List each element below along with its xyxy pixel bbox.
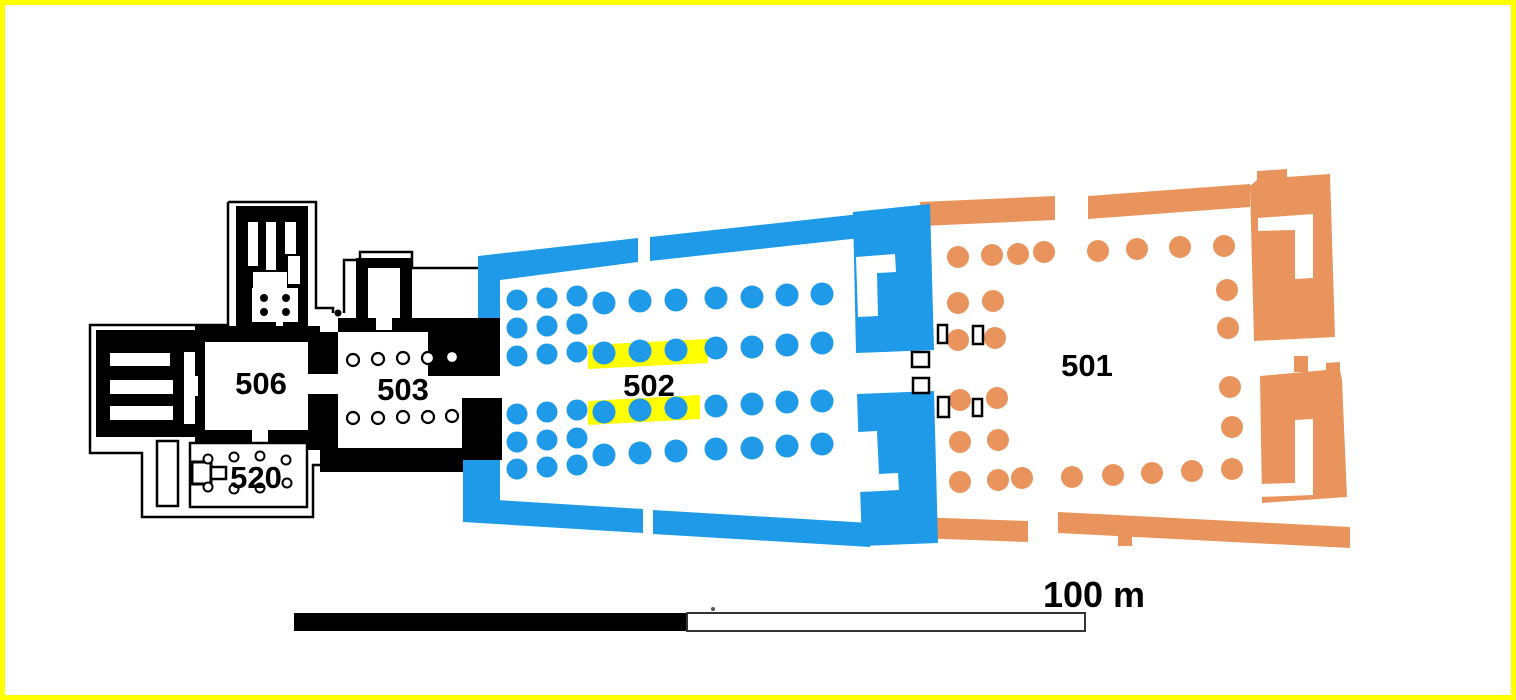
column xyxy=(629,340,652,363)
column xyxy=(665,339,688,362)
scale-bar-speck xyxy=(711,607,715,611)
room506-north-wall xyxy=(195,326,320,342)
column xyxy=(347,354,359,366)
column xyxy=(1126,238,1148,260)
column xyxy=(987,469,1009,491)
column xyxy=(1221,416,1243,438)
chapel-slot-3 xyxy=(285,222,296,254)
column xyxy=(397,411,409,423)
column xyxy=(1033,241,1055,263)
column xyxy=(537,402,558,423)
column xyxy=(507,346,528,367)
column xyxy=(567,455,588,476)
column xyxy=(507,318,528,339)
column xyxy=(984,327,1006,349)
column xyxy=(629,442,652,465)
court-base-1 xyxy=(938,325,947,343)
label-area-506: 506 xyxy=(235,366,287,401)
column xyxy=(705,438,728,461)
entrance-gate-tab xyxy=(1294,356,1308,372)
column xyxy=(986,387,1008,409)
column xyxy=(987,429,1009,451)
column xyxy=(567,286,588,307)
column xyxy=(1216,279,1238,301)
column xyxy=(537,316,558,337)
column xyxy=(629,290,652,313)
column xyxy=(741,286,764,309)
column xyxy=(1141,462,1163,484)
column xyxy=(811,332,834,355)
column xyxy=(260,308,268,316)
column xyxy=(372,353,384,365)
column xyxy=(665,289,688,312)
chapel-slot-4 xyxy=(288,256,300,284)
column xyxy=(1217,317,1239,339)
column xyxy=(593,401,616,424)
column xyxy=(665,440,688,463)
column xyxy=(811,283,834,306)
west-chamber-2 xyxy=(110,380,173,394)
column xyxy=(705,395,728,418)
column xyxy=(949,431,971,453)
court520-altar-step xyxy=(211,467,226,479)
column xyxy=(507,290,528,311)
column xyxy=(537,430,558,451)
column xyxy=(811,433,834,456)
room503-chapel-interior xyxy=(368,268,400,318)
column xyxy=(811,390,834,413)
column xyxy=(422,352,434,364)
column xyxy=(507,404,528,425)
hall-west-wall-north xyxy=(478,256,500,324)
column xyxy=(949,471,971,493)
column xyxy=(1213,235,1235,257)
column xyxy=(776,334,799,357)
column xyxy=(593,342,616,365)
column xyxy=(567,400,588,421)
plan-dot-b xyxy=(328,453,336,461)
room506-east-wall-a xyxy=(308,332,338,374)
column xyxy=(947,246,969,268)
room503-south-wall xyxy=(320,448,463,472)
column xyxy=(397,352,409,364)
plan-dot-a xyxy=(335,310,342,317)
court520-altar xyxy=(192,462,211,484)
column xyxy=(1219,376,1241,398)
column xyxy=(204,483,213,492)
column xyxy=(776,391,799,414)
court-base-2 xyxy=(973,326,983,344)
court-base-3 xyxy=(938,397,949,417)
column xyxy=(372,412,384,424)
room506-west-wall-b xyxy=(195,396,203,430)
column xyxy=(446,351,458,363)
scale-bar-white-half xyxy=(687,613,1085,631)
entrance-pylon-north-tower xyxy=(1250,169,1335,341)
column xyxy=(282,294,290,302)
column xyxy=(1181,460,1203,482)
column xyxy=(260,294,268,302)
column xyxy=(422,411,434,423)
label-area-520: 520 xyxy=(230,460,282,495)
chapel-slot-2 xyxy=(266,222,276,270)
temple-plan-drawing: 501 502 503 506 520 100 m xyxy=(0,0,1516,700)
column xyxy=(593,292,616,315)
column xyxy=(567,314,588,335)
column xyxy=(537,344,558,365)
gate-jamb-south xyxy=(913,378,929,393)
column xyxy=(537,288,558,309)
column xyxy=(1061,466,1083,488)
column xyxy=(741,437,764,460)
gate-jamb-north xyxy=(912,352,929,367)
column xyxy=(283,479,292,488)
column xyxy=(282,456,291,465)
label-area-503: 503 xyxy=(377,372,429,407)
column xyxy=(347,412,359,424)
scale-bar-label: 100 m xyxy=(1043,574,1145,615)
column xyxy=(507,459,528,480)
column xyxy=(446,410,458,422)
column xyxy=(741,336,764,359)
column xyxy=(982,290,1004,312)
label-area-501: 501 xyxy=(1061,348,1113,383)
scale-bar-black-half xyxy=(294,613,687,631)
column xyxy=(1011,467,1033,489)
column xyxy=(947,292,969,314)
junction-block-south xyxy=(462,398,502,460)
west-chamber-1 xyxy=(110,353,170,366)
column xyxy=(776,284,799,307)
west-chamber-3 xyxy=(110,406,173,420)
column xyxy=(567,342,588,363)
column xyxy=(705,337,728,360)
column xyxy=(1221,458,1243,480)
column xyxy=(282,308,290,316)
column xyxy=(1087,240,1109,262)
column xyxy=(1102,464,1124,486)
column xyxy=(705,287,728,310)
court-south-wall-tab xyxy=(1118,533,1132,546)
room506-west-wall-a xyxy=(195,342,203,376)
court-base-4 xyxy=(973,399,982,416)
column xyxy=(741,393,764,416)
column xyxy=(776,435,799,458)
column xyxy=(1169,236,1191,258)
label-area-502: 502 xyxy=(623,368,675,403)
column xyxy=(537,457,558,478)
column xyxy=(567,428,588,449)
column xyxy=(507,432,528,453)
court520-corridor-outline xyxy=(157,441,178,506)
column xyxy=(981,244,1003,266)
junction-block-north xyxy=(428,318,500,376)
temple-plan-page: 501 502 503 506 520 100 m xyxy=(0,0,1516,700)
column xyxy=(1007,243,1029,265)
room503-chapel-doorway xyxy=(376,316,392,330)
column xyxy=(204,455,213,464)
column xyxy=(949,389,971,411)
chapel-columned-room xyxy=(252,288,298,322)
column xyxy=(593,444,616,467)
column xyxy=(947,329,969,351)
chapel-cross-passage xyxy=(253,272,287,288)
chapel-slot-1 xyxy=(248,222,258,266)
